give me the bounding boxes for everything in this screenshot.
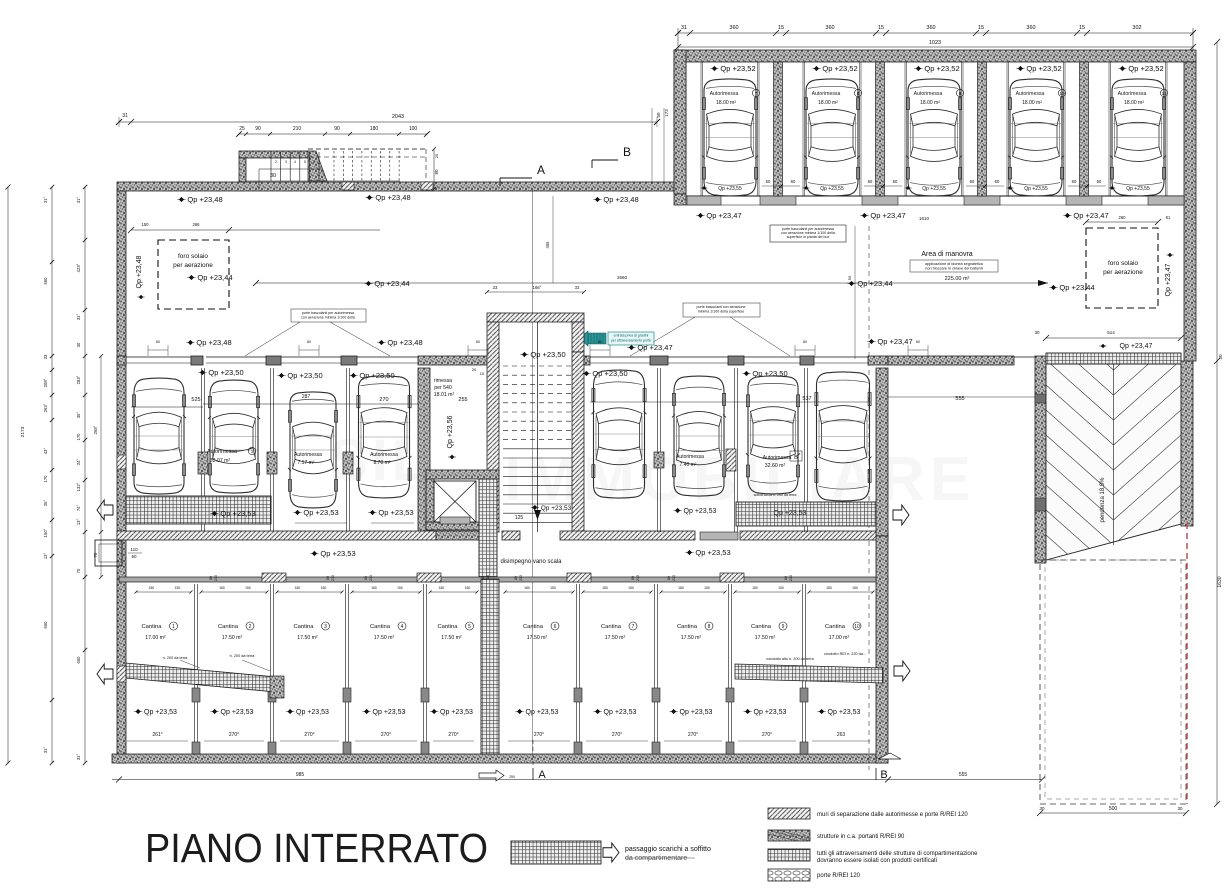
svg-text:Autorimessa: Autorimessa (294, 452, 322, 458)
svg-text:condotto REI n. 220 da...: condotto REI n. 220 da... (824, 652, 866, 656)
svg-text:210: 210 (293, 126, 302, 132)
svg-text:non bloccare in chiave dei bat: non bloccare in chiave dei battenti (925, 267, 983, 271)
svg-text:per aerazione: per aerazione (173, 262, 213, 269)
svg-text:Qp +23,44: Qp +23,44 (197, 273, 232, 282)
svg-text:Qp +23,50: Qp +23,50 (287, 371, 322, 380)
svg-text:80: 80 (326, 576, 330, 580)
svg-text:70: 70 (93, 552, 98, 557)
svg-text:Qp +23,55: Qp +23,55 (1126, 186, 1150, 192)
svg-text:180: 180 (370, 126, 379, 132)
svg-text:Autorimessa: Autorimessa (1016, 91, 1045, 97)
svg-text:Qp +23,53: Qp +23,53 (373, 709, 406, 716)
svg-text:17.00 m²: 17.00 m² (145, 635, 166, 641)
svg-text:Qp +23,53: Qp +23,53 (440, 709, 473, 716)
svg-text:70: 70 (76, 568, 81, 573)
svg-text:180: 180 (826, 586, 832, 590)
svg-text:60: 60 (1072, 179, 1077, 184)
svg-text:Qp +23,53: Qp +23,53 (303, 508, 338, 517)
svg-text:Qp +23,50: Qp +23,50 (530, 350, 565, 359)
svg-text:Qp +23,53: Qp +23,53 (684, 508, 717, 515)
svg-text:foro solaio: foro solaio (178, 253, 208, 260)
svg-text:263°: 263° (43, 403, 48, 412)
svg-text:60: 60 (766, 179, 771, 184)
svg-text:17.50 m²: 17.50 m² (374, 635, 395, 641)
svg-text:30: 30 (1039, 806, 1045, 811)
svg-text:423°: 423° (76, 263, 81, 272)
svg-text:Qp +23,53: Qp +23,53 (774, 510, 807, 517)
svg-text:225.00 m²: 225.00 m² (945, 276, 970, 282)
svg-text:60: 60 (131, 554, 137, 559)
svg-text:13°: 13° (76, 519, 81, 526)
svg-text:Qp +23,53: Qp +23,53 (828, 709, 861, 716)
svg-text:24°: 24° (76, 459, 81, 466)
svg-text:210: 210 (672, 575, 676, 581)
svg-text:muri di separazione dalle auto: muri di separazione dalle autorimesse e … (817, 812, 968, 818)
svg-text:Qp +23,47: Qp +23,47 (1073, 211, 1108, 220)
svg-text:33: 33 (43, 354, 48, 359)
svg-text:10: 10 (480, 371, 485, 376)
svg-text:17.50 m²: 17.50 m² (222, 635, 243, 641)
svg-text:Qp +23,53: Qp +23,53 (695, 548, 730, 557)
svg-text:455: 455 (545, 241, 550, 249)
svg-text:13°: 13° (43, 553, 48, 560)
svg-text:1630: 1630 (1217, 576, 1223, 587)
svg-text:31°: 31° (76, 197, 81, 204)
svg-text:17.50 m²: 17.50 m² (605, 635, 626, 641)
svg-text:150: 150 (175, 586, 181, 590)
svg-text:15: 15 (1079, 25, 1085, 31)
svg-text:60: 60 (995, 179, 1000, 184)
svg-text:36°: 36° (76, 412, 81, 419)
svg-text:80: 80 (307, 340, 311, 344)
svg-text:Qp +23,53: Qp +23,53 (680, 709, 713, 716)
svg-text:2043: 2043 (392, 114, 404, 120)
svg-text:30: 30 (1177, 806, 1183, 811)
svg-text:100: 100 (409, 126, 418, 132)
svg-text:strutture in c.a. portanti R/: strutture in c.a. portanti R/REI 90 (817, 834, 905, 840)
svg-text:n. 200 da terra: n. 200 da terra (163, 656, 189, 660)
svg-text:Qp +23,48: Qp +23,48 (603, 195, 638, 204)
svg-text:261°: 261° (152, 732, 162, 738)
svg-text:60: 60 (893, 179, 898, 184)
svg-text:A: A (537, 163, 545, 177)
svg-text:Qp +23,47: Qp +23,47 (637, 343, 672, 352)
svg-text:Qp +23,55: Qp +23,55 (1024, 186, 1048, 192)
svg-text:pendenza 18,9%: pendenza 18,9% (1100, 477, 1106, 523)
svg-text:110: 110 (130, 547, 138, 552)
svg-text:302: 302 (1132, 25, 1141, 31)
svg-text:entrata priva di gradini: entrata priva di gradini (614, 334, 649, 338)
svg-text:537: 537 (802, 396, 811, 402)
svg-text:Qp +23,50: Qp +23,50 (208, 368, 243, 377)
svg-text:A: A (538, 769, 546, 781)
svg-text:minima 1/100 della superficie: minima 1/100 della superficie (698, 310, 745, 314)
svg-text:3: 3 (324, 624, 327, 630)
svg-text:250: 250 (509, 775, 515, 779)
svg-text:18.00 m²: 18.00 m² (1022, 100, 1042, 106)
svg-text:Area di manovra: Area di manovra (921, 251, 972, 258)
svg-text:Qp +23,48: Qp +23,48 (375, 193, 410, 202)
svg-text:18.01 m²: 18.01 m² (434, 392, 455, 398)
svg-text:17.50 m²: 17.50 m² (527, 635, 548, 641)
svg-text:210: 210 (519, 575, 523, 581)
svg-text:Qp +23,55: Qp +23,55 (820, 186, 844, 192)
svg-text:Qp +23,53: Qp +23,53 (296, 709, 329, 716)
svg-text:5: 5 (304, 160, 306, 164)
svg-text:150: 150 (628, 586, 634, 590)
svg-text:passaggio scarichi a soffitto: passaggio scarichi a soffitto (625, 846, 711, 853)
svg-text:condotto alto n. 200 da terra: condotto alto n. 200 da terra (766, 657, 814, 661)
svg-text:Autorimessa: Autorimessa (763, 455, 792, 461)
svg-text:con aerazione minima 1/100 del: con aerazione minima 1/100 della (301, 316, 355, 320)
svg-text:31: 31 (122, 113, 128, 119)
svg-text:18.00 m²: 18.00 m² (716, 100, 736, 106)
svg-text:80: 80 (784, 576, 788, 580)
svg-text:80: 80 (209, 576, 213, 580)
svg-text:180: 180 (752, 586, 758, 590)
svg-text:270°: 270° (534, 732, 544, 738)
svg-text:7.17 m²: 7.17 m² (298, 460, 315, 466)
svg-text:270: 270 (379, 397, 388, 403)
svg-text:150: 150 (852, 586, 858, 590)
svg-text:31°: 31° (76, 314, 81, 321)
svg-text:360: 360 (926, 25, 935, 31)
svg-text:80: 80 (916, 340, 920, 344)
svg-text:500: 500 (1109, 806, 1118, 812)
svg-text:150: 150 (397, 586, 403, 590)
svg-text:8: 8 (857, 91, 860, 96)
svg-text:Cantina: Cantina (677, 624, 698, 630)
svg-text:268°: 268° (93, 425, 98, 434)
svg-text:sottotraccia n. 200 da terra: sottotraccia n. 200 da terra (754, 493, 797, 497)
svg-text:525: 525 (191, 397, 200, 403)
svg-text:90: 90 (334, 126, 340, 132)
svg-text:2: 2 (275, 160, 277, 164)
svg-text:Qp +23,53: Qp +23,53 (541, 505, 572, 512)
svg-text:150: 150 (321, 586, 327, 590)
svg-text:7: 7 (632, 624, 635, 630)
svg-text:31°: 31° (43, 747, 48, 754)
svg-text:B: B (623, 145, 631, 159)
svg-text:PIANO INTERRATO: PIANO INTERRATO (145, 825, 488, 871)
svg-text:Qp +23,47: Qp +23,47 (870, 211, 905, 220)
svg-text:150: 150 (245, 586, 251, 590)
svg-text:33: 33 (575, 285, 580, 290)
svg-text:30: 30 (270, 173, 276, 179)
svg-text:260: 260 (1119, 215, 1127, 220)
svg-text:10: 10 (1059, 91, 1065, 96)
svg-text:650: 650 (43, 621, 48, 629)
svg-text:255: 255 (458, 397, 467, 403)
svg-text:360: 360 (729, 25, 738, 31)
svg-text:18.00 m²: 18.00 m² (1124, 100, 1144, 106)
svg-text:150: 150 (704, 586, 710, 590)
svg-text:2: 2 (249, 624, 252, 630)
svg-text:270°: 270° (762, 732, 772, 738)
svg-text:80: 80 (476, 340, 480, 344)
svg-text:32.07 m²: 32.07 m² (210, 458, 231, 464)
svg-text:Qp +23,52: Qp +23,52 (822, 64, 857, 73)
svg-text:Cantina: Cantina (370, 624, 391, 630)
svg-text:60: 60 (1097, 179, 1102, 184)
svg-text:da compartimentare: da compartimentare (625, 855, 687, 862)
svg-text:1: 1 (251, 449, 254, 454)
svg-text:Qp +23,53: Qp +23,53 (526, 709, 559, 716)
svg-text:Autorimessa: Autorimessa (812, 91, 841, 97)
svg-text:Qp +23,44: Qp +23,44 (857, 279, 892, 288)
svg-text:210: 210 (214, 575, 218, 581)
svg-text:80: 80 (803, 340, 807, 344)
svg-text:Qp +23,53: Qp +23,53 (754, 709, 787, 716)
svg-text:31: 31 (681, 25, 687, 31)
svg-text:Cantina: Cantina (601, 624, 622, 630)
svg-text:11: 11 (1162, 91, 1167, 96)
svg-text:B: B (880, 769, 887, 781)
svg-text:6: 6 (554, 624, 557, 630)
svg-text:180: 180 (149, 586, 155, 590)
svg-text:superficie in pianta del box: superficie in pianta del box (787, 235, 830, 239)
svg-text:270°: 270° (448, 732, 458, 738)
svg-text:20: 20 (472, 367, 477, 372)
svg-text:360: 360 (825, 25, 834, 31)
svg-text:Qp +23,55: Qp +23,55 (922, 186, 946, 192)
svg-text:283°: 283° (76, 375, 81, 384)
svg-text:Autorimessa: Autorimessa (370, 452, 398, 458)
svg-text:170: 170 (76, 433, 81, 441)
svg-text:disimpegno vano scala: disimpegno vano scala (500, 559, 562, 565)
svg-text:26°: 26° (43, 500, 48, 507)
svg-text:per attraversamento porte: per attraversamento porte (611, 339, 651, 343)
svg-text:150°: 150° (43, 528, 48, 537)
svg-text:15: 15 (778, 25, 784, 31)
svg-text:270°: 270° (229, 732, 239, 738)
svg-text:30: 30 (1034, 330, 1040, 335)
svg-text:Qp +23,47: Qp +23,47 (1165, 263, 1172, 296)
svg-text:263: 263 (837, 732, 846, 738)
svg-text:Cantina: Cantina (218, 624, 239, 630)
svg-text:B: B (794, 455, 798, 461)
svg-text:180: 180 (602, 586, 608, 590)
svg-text:Autorimessa: Autorimessa (207, 449, 237, 455)
svg-text:31°: 31° (76, 754, 81, 761)
svg-text:80: 80 (434, 169, 439, 175)
svg-text:8: 8 (708, 624, 711, 630)
svg-text:dovranno essere isolati con pr: dovranno essere isolati con prodotti cer… (817, 858, 937, 864)
svg-text:15: 15 (878, 25, 884, 31)
svg-text:Qp +23,53: Qp +23,53 (604, 709, 637, 716)
svg-text:180: 180 (678, 586, 684, 590)
svg-text:180: 180 (439, 586, 445, 590)
svg-text:Qp +23,52: Qp +23,52 (1128, 64, 1163, 73)
svg-text:270°: 270° (612, 732, 622, 738)
svg-text:180: 180 (371, 586, 377, 590)
svg-text:208°: 208° (43, 378, 48, 387)
svg-text:4: 4 (401, 624, 404, 630)
svg-text:7: 7 (755, 91, 758, 96)
svg-text:2660: 2660 (617, 275, 628, 280)
svg-text:Qp +23,53: Qp +23,53 (220, 509, 255, 518)
svg-text:Cantina: Cantina (825, 624, 846, 630)
svg-text:985: 985 (296, 772, 305, 778)
svg-text:25: 25 (434, 153, 439, 158)
svg-text:Qp +23,44: Qp +23,44 (1059, 283, 1094, 292)
svg-text:17.50 m²: 17.50 m² (755, 635, 776, 641)
svg-text:porte basculanti per autorimes: porte basculanti per autorimessa (302, 311, 354, 315)
svg-text:porte basculanti con aerazion: porte basculanti con aerazione (697, 305, 746, 309)
svg-text:Qp +23,53: Qp +23,53 (320, 549, 355, 558)
svg-text:210: 210 (636, 575, 640, 581)
svg-text:Autorimessa: Autorimessa (710, 91, 739, 97)
svg-text:Qp +23,53: Qp +23,53 (221, 709, 254, 716)
svg-text:31°: 31° (43, 197, 48, 204)
svg-text:9: 9 (959, 91, 962, 96)
svg-text:74°: 74° (76, 505, 81, 512)
svg-text:514: 514 (1107, 330, 1115, 335)
svg-text:Qp +23,44: Qp +23,44 (374, 279, 409, 288)
svg-text:50: 50 (656, 112, 661, 118)
svg-text:30: 30 (1218, 354, 1223, 360)
svg-text:Qp +23,55: Qp +23,55 (718, 186, 742, 192)
svg-text:30: 30 (76, 342, 81, 347)
svg-text:Cantina: Cantina (751, 624, 772, 630)
svg-text:Qp +23,52: Qp +23,52 (924, 64, 959, 73)
svg-text:Qp +23,52: Qp +23,52 (720, 64, 755, 73)
svg-text:Qp +23,48: Qp +23,48 (196, 338, 231, 347)
svg-text:33: 33 (493, 285, 498, 290)
svg-text:Autorimessa: Autorimessa (676, 454, 704, 460)
svg-text:17.00 m²: 17.00 m² (829, 635, 850, 641)
svg-text:Autorimessa: Autorimessa (914, 91, 943, 97)
svg-text:rimessa: rimessa (434, 378, 452, 384)
svg-text:15: 15 (978, 25, 984, 31)
svg-text:180: 180 (524, 586, 530, 590)
svg-text:150: 150 (465, 586, 471, 590)
svg-text:270°: 270° (304, 732, 314, 738)
svg-text:Qp +23,47: Qp +23,47 (706, 211, 741, 220)
svg-text:555: 555 (959, 772, 968, 778)
svg-text:2173: 2173 (20, 426, 26, 437)
svg-text:560: 560 (43, 277, 48, 285)
svg-text:166°: 166° (533, 285, 542, 290)
svg-text:360: 360 (1026, 25, 1035, 31)
svg-text:1023: 1023 (929, 40, 941, 46)
svg-text:80: 80 (667, 576, 671, 580)
svg-text:Qp +23,52: Qp +23,52 (1026, 64, 1061, 73)
svg-text:Cantina: Cantina (523, 624, 544, 630)
svg-text:Qp +23,48: Qp +23,48 (136, 255, 143, 288)
svg-text:6: 6 (313, 160, 315, 164)
svg-text:9: 9 (782, 624, 785, 630)
svg-text:10: 10 (854, 624, 860, 630)
svg-text:4: 4 (294, 160, 296, 164)
svg-text:8.70 m²: 8.70 m² (374, 460, 391, 466)
svg-text:18.00 m²: 18.00 m² (818, 100, 838, 106)
svg-text:173: 173 (664, 109, 669, 117)
svg-text:18.00 m²: 18.00 m² (920, 100, 940, 106)
svg-text:180: 180 (219, 586, 225, 590)
svg-text:Qp +23,47: Qp +23,47 (877, 337, 912, 346)
svg-text:Autorimessa: Autorimessa (1118, 91, 1147, 97)
svg-text:1: 1 (172, 624, 175, 630)
svg-text:Qp +23,56: Qp +23,56 (447, 415, 454, 448)
svg-text:210: 210 (331, 575, 335, 581)
svg-text:150: 150 (142, 222, 150, 227)
svg-text:32.60 m²: 32.60 m² (765, 463, 786, 469)
svg-text:270°: 270° (688, 732, 698, 738)
svg-text:Cantina: Cantina (438, 624, 459, 630)
svg-text:50: 50 (847, 275, 852, 280)
svg-text:Cantina: Cantina (142, 624, 163, 630)
svg-text:17.50 m²: 17.50 m² (297, 635, 318, 641)
svg-text:25: 25 (239, 126, 245, 132)
svg-text:Qp +23,47: Qp +23,47 (1120, 343, 1153, 350)
svg-text:17.50 m²: 17.50 m² (441, 635, 462, 641)
svg-text:per aerazione: per aerazione (1103, 269, 1143, 276)
svg-text:80: 80 (156, 340, 160, 344)
svg-text:60: 60 (970, 179, 975, 184)
svg-text:Cantina: Cantina (294, 624, 315, 630)
svg-text:60: 60 (791, 179, 796, 184)
svg-text:210: 210 (789, 575, 793, 581)
svg-text:tutti gli attraversamenti dell: tutti gli attraversamenti delle struttur… (817, 851, 978, 857)
svg-text:60: 60 (868, 179, 873, 184)
svg-text:150: 150 (550, 586, 556, 590)
svg-text:80: 80 (631, 576, 635, 580)
svg-text:266: 266 (193, 222, 201, 227)
svg-text:80: 80 (598, 340, 602, 344)
svg-text:Qp +23,53: Qp +23,53 (144, 709, 177, 716)
svg-text:7.40 m²: 7.40 m² (680, 462, 697, 468)
svg-text:Qp +23,48: Qp +23,48 (387, 338, 422, 347)
svg-text:3: 3 (285, 160, 287, 164)
svg-text:180: 180 (295, 586, 301, 590)
svg-text:17.50 m²: 17.50 m² (681, 635, 702, 641)
svg-text:80: 80 (514, 576, 518, 580)
svg-text:h. 200 da terra: h. 200 da terra (230, 654, 256, 658)
svg-text:270°: 270° (381, 732, 391, 738)
svg-text:porte R/REI 120: porte R/REI 120 (817, 873, 861, 879)
svg-text:90: 90 (255, 126, 261, 132)
svg-text:170: 170 (43, 475, 48, 483)
svg-text:Qp +23,48: Qp +23,48 (187, 195, 222, 204)
svg-text:61: 61 (1166, 215, 1171, 220)
svg-text:210: 210 (369, 575, 373, 581)
svg-text:applicazione di idonea segnale: applicazione di idonea segnaletica (925, 262, 984, 266)
svg-text:132°: 132° (76, 482, 81, 491)
svg-text:43°: 43° (43, 448, 48, 455)
svg-text:1610: 1610 (919, 216, 930, 221)
svg-text:125: 125 (515, 515, 524, 521)
svg-text:per 540: per 540 (434, 385, 452, 391)
svg-text:650: 650 (76, 656, 81, 664)
svg-text:150: 150 (778, 586, 784, 590)
svg-text:5: 5 (468, 624, 471, 630)
svg-text:foro solaio: foro solaio (1108, 260, 1138, 267)
svg-text:Qp +23,53: Qp +23,53 (378, 508, 413, 517)
svg-text:80: 80 (364, 576, 368, 580)
